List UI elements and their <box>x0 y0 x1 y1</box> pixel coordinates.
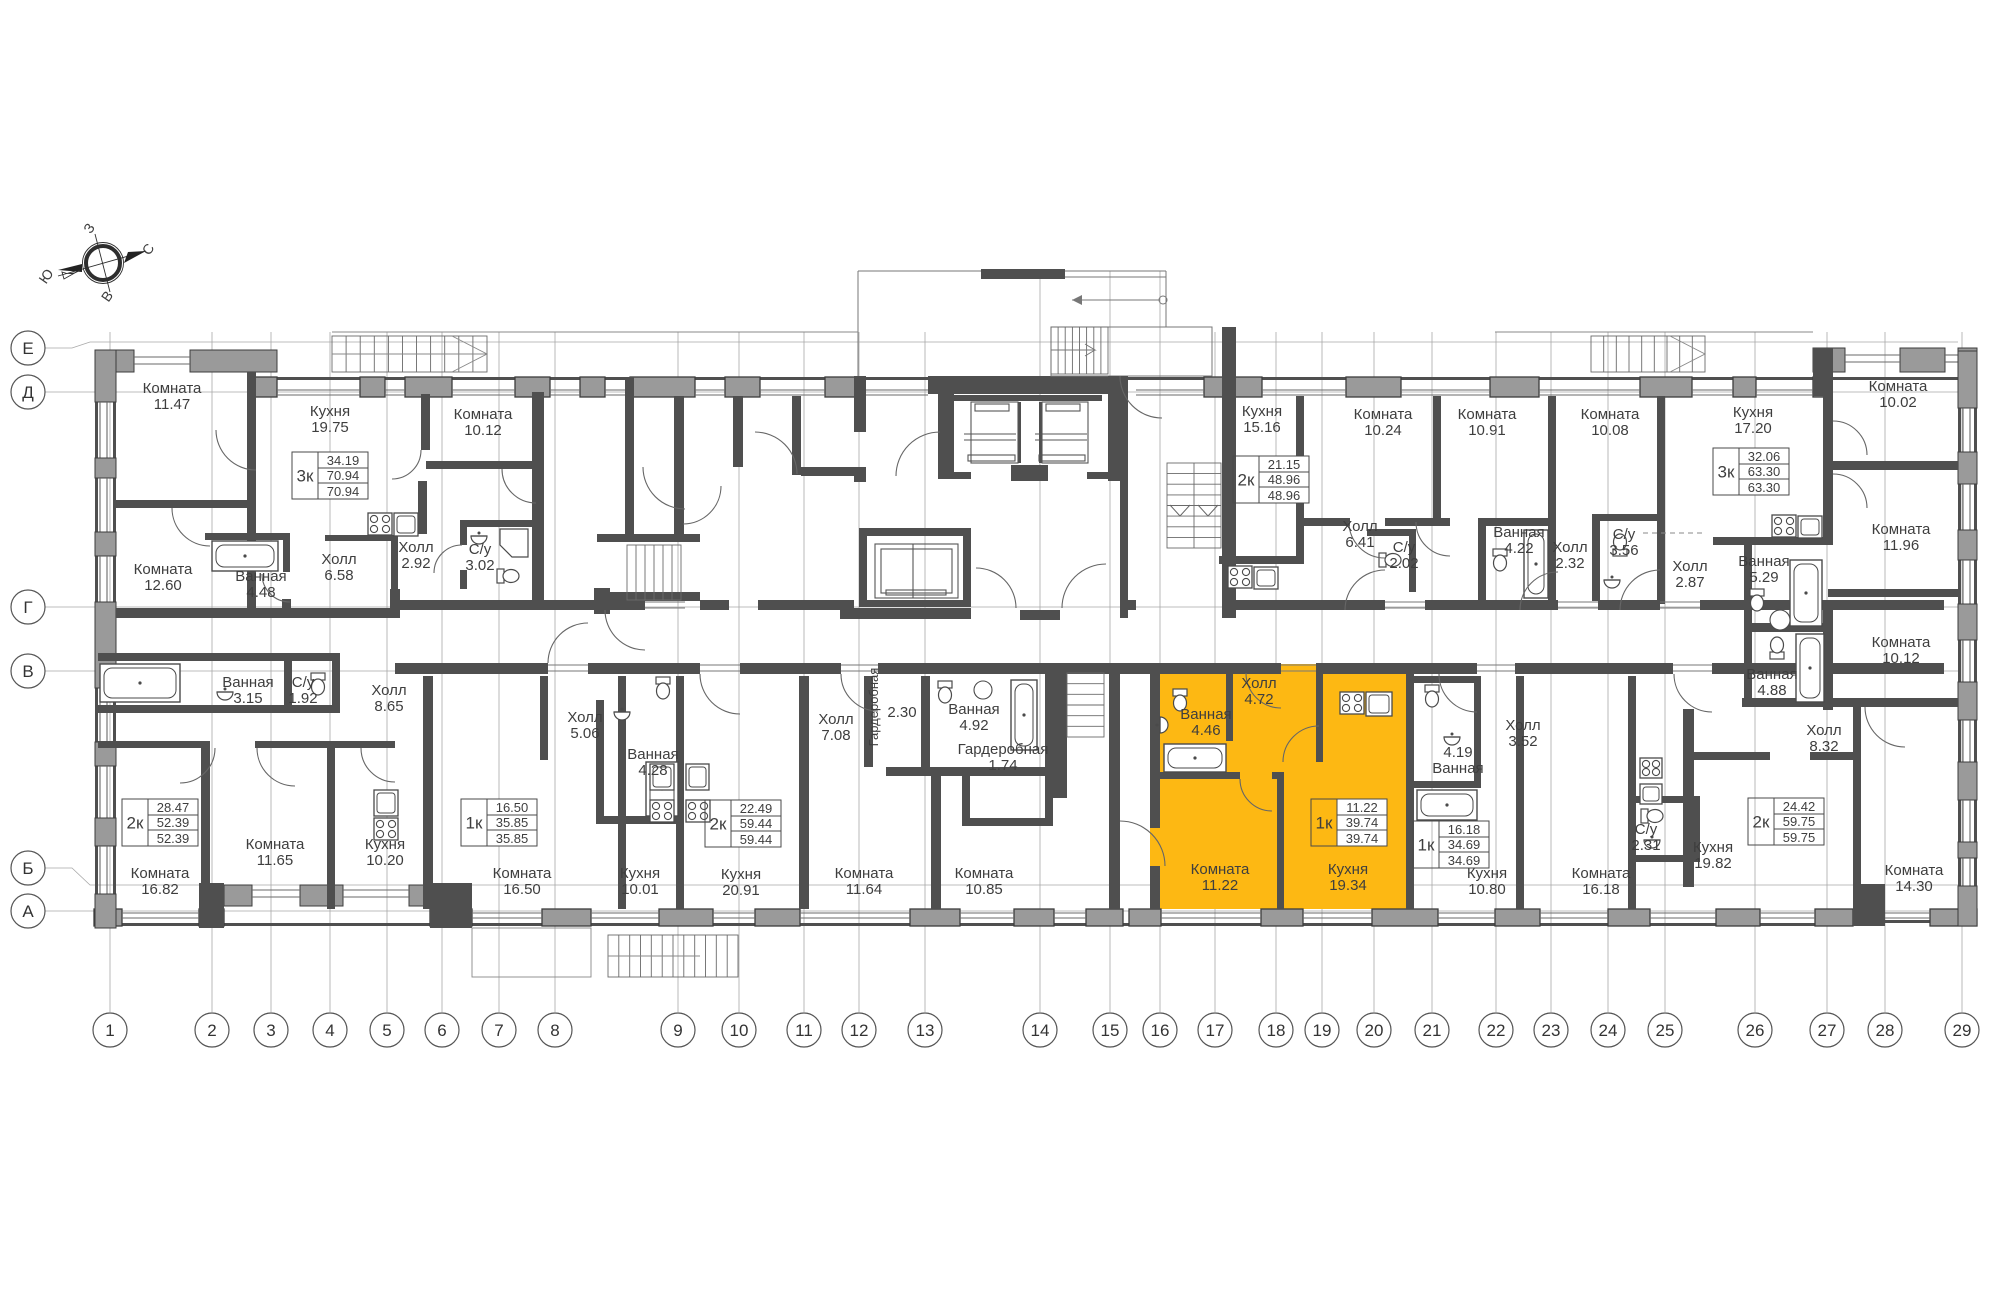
svg-text:19.82: 19.82 <box>1694 855 1732 872</box>
svg-text:2к: 2к <box>1753 813 1770 832</box>
svg-text:Ванная: Ванная <box>1432 760 1483 777</box>
svg-text:Комната: Комната <box>1458 406 1517 423</box>
svg-text:11.96: 11.96 <box>1883 537 1919 554</box>
svg-text:Комната: Комната <box>835 865 894 882</box>
svg-text:Кухня: Кухня <box>365 836 405 853</box>
svg-text:Комната: Комната <box>1581 406 1640 423</box>
svg-text:19.75: 19.75 <box>311 419 349 436</box>
svg-text:20: 20 <box>1365 1021 1384 1040</box>
svg-text:2.02: 2.02 <box>1389 555 1418 572</box>
svg-text:32.06: 32.06 <box>1748 449 1781 464</box>
svg-text:7: 7 <box>494 1021 503 1040</box>
svg-text:11.65: 11.65 <box>257 852 293 869</box>
svg-text:С/у: С/у <box>1635 821 1658 838</box>
svg-text:14: 14 <box>1031 1021 1050 1040</box>
svg-text:Комната: Комната <box>131 865 190 882</box>
svg-text:С/у: С/у <box>292 674 315 691</box>
svg-text:6.58: 6.58 <box>324 567 353 584</box>
svg-text:Холл: Холл <box>1672 558 1707 575</box>
svg-text:6: 6 <box>437 1021 446 1040</box>
svg-text:2к: 2к <box>710 815 727 834</box>
svg-text:11.64: 11.64 <box>846 881 882 898</box>
svg-text:Ванная: Ванная <box>1493 524 1544 541</box>
svg-text:9: 9 <box>673 1021 682 1040</box>
svg-text:10.91: 10.91 <box>1468 422 1506 439</box>
svg-text:Е: Е <box>22 339 33 358</box>
svg-text:26: 26 <box>1746 1021 1765 1040</box>
svg-text:Комната: Комната <box>134 561 193 578</box>
svg-text:3.52: 3.52 <box>1508 733 1537 750</box>
svg-text:Кухня: Кухня <box>1242 403 1282 420</box>
svg-text:Ванная: Ванная <box>222 674 273 691</box>
svg-text:3.02: 3.02 <box>465 557 494 574</box>
svg-text:52.39: 52.39 <box>157 815 190 830</box>
svg-text:10.20: 10.20 <box>366 852 404 869</box>
svg-text:Ванная: Ванная <box>627 746 678 763</box>
svg-text:5.29: 5.29 <box>1749 569 1778 586</box>
svg-text:48.96: 48.96 <box>1268 472 1301 487</box>
svg-text:4.22: 4.22 <box>1504 540 1533 557</box>
svg-text:10.85: 10.85 <box>965 881 1003 898</box>
svg-text:8: 8 <box>550 1021 559 1040</box>
svg-text:Ванная: Ванная <box>1738 553 1789 570</box>
svg-text:Комната: Комната <box>1354 406 1413 423</box>
svg-text:11: 11 <box>795 1021 813 1040</box>
svg-text:35.85: 35.85 <box>496 815 529 830</box>
svg-text:10: 10 <box>730 1021 749 1040</box>
svg-text:11.22: 11.22 <box>1346 800 1378 815</box>
svg-text:59.44: 59.44 <box>740 816 773 831</box>
svg-text:8.32: 8.32 <box>1809 738 1838 755</box>
svg-text:59.44: 59.44 <box>740 832 773 847</box>
svg-text:Б: Б <box>22 859 33 878</box>
svg-text:16.82: 16.82 <box>141 881 179 898</box>
svg-text:27: 27 <box>1818 1021 1837 1040</box>
svg-text:22.49: 22.49 <box>740 801 773 816</box>
svg-text:Комната: Комната <box>1572 865 1631 882</box>
svg-text:Комната: Комната <box>454 406 513 423</box>
svg-text:3к: 3к <box>1718 463 1735 482</box>
svg-text:34.69: 34.69 <box>1448 837 1481 852</box>
svg-text:1: 1 <box>105 1021 114 1040</box>
svg-text:48.96: 48.96 <box>1268 488 1301 503</box>
svg-text:Холл: Холл <box>1241 675 1276 692</box>
svg-text:13: 13 <box>916 1021 935 1040</box>
svg-text:21.15: 21.15 <box>1268 457 1301 472</box>
svg-text:14.30: 14.30 <box>1895 878 1933 895</box>
svg-text:1к: 1к <box>1316 814 1333 833</box>
svg-text:Кухня: Кухня <box>1733 404 1773 421</box>
svg-text:2к: 2к <box>127 814 144 833</box>
svg-text:Комната: Комната <box>955 865 1014 882</box>
svg-text:39.74: 39.74 <box>1346 831 1379 846</box>
svg-text:Холл: Холл <box>1505 717 1540 734</box>
svg-text:29: 29 <box>1953 1021 1972 1040</box>
svg-text:1.92: 1.92 <box>288 690 317 707</box>
svg-text:5: 5 <box>382 1021 391 1040</box>
svg-text:15.16: 15.16 <box>1243 419 1281 436</box>
svg-text:4.19: 4.19 <box>1443 744 1472 761</box>
svg-text:15: 15 <box>1101 1021 1120 1040</box>
svg-text:5.06: 5.06 <box>570 725 599 742</box>
svg-text:24.42: 24.42 <box>1783 799 1816 814</box>
svg-text:Холл: Холл <box>321 551 356 568</box>
svg-text:6.41: 6.41 <box>1345 534 1374 551</box>
svg-text:4.48: 4.48 <box>246 584 275 601</box>
svg-text:Комната: Комната <box>1885 862 1944 879</box>
svg-text:17.20: 17.20 <box>1734 420 1772 437</box>
svg-text:Комната: Комната <box>493 865 552 882</box>
svg-text:Комната: Комната <box>1191 861 1250 878</box>
svg-text:Комната: Комната <box>1869 378 1928 395</box>
svg-text:4.88: 4.88 <box>1757 682 1786 699</box>
svg-text:21: 21 <box>1423 1021 1442 1040</box>
svg-text:11.47: 11.47 <box>154 396 190 413</box>
svg-text:Холл: Холл <box>567 709 602 726</box>
svg-text:4.46: 4.46 <box>1191 722 1220 739</box>
svg-text:59.75: 59.75 <box>1783 830 1816 845</box>
svg-text:39.74: 39.74 <box>1346 815 1379 830</box>
svg-text:25: 25 <box>1656 1021 1675 1040</box>
svg-text:10.01: 10.01 <box>621 881 659 898</box>
svg-text:63.30: 63.30 <box>1748 480 1781 495</box>
svg-text:С/у: С/у <box>1613 526 1636 543</box>
svg-text:2.32: 2.32 <box>1555 555 1584 572</box>
svg-text:Комната: Комната <box>143 380 202 397</box>
svg-text:Комната: Комната <box>1872 521 1931 538</box>
svg-text:1.74: 1.74 <box>988 757 1017 774</box>
svg-text:3.15: 3.15 <box>233 690 262 707</box>
svg-text:3: 3 <box>266 1021 275 1040</box>
svg-text:В: В <box>22 662 33 681</box>
svg-text:Гардеробная: Гардеробная <box>866 668 881 747</box>
svg-text:Холл: Холл <box>1552 539 1587 556</box>
svg-text:16.18: 16.18 <box>1448 822 1481 837</box>
svg-text:24: 24 <box>1599 1021 1618 1040</box>
svg-text:Холл: Холл <box>1342 518 1377 535</box>
svg-text:Гардеробная: Гардеробная <box>958 741 1049 758</box>
svg-text:Ванная: Ванная <box>948 701 999 718</box>
svg-text:3к: 3к <box>297 467 314 486</box>
svg-text:12: 12 <box>850 1021 869 1040</box>
svg-text:Д: Д <box>22 383 34 402</box>
svg-text:Ванная: Ванная <box>1746 666 1797 683</box>
svg-text:2.31: 2.31 <box>1631 837 1660 854</box>
svg-text:2.87: 2.87 <box>1675 574 1704 591</box>
svg-text:12.60: 12.60 <box>144 577 182 594</box>
svg-text:3.56: 3.56 <box>1609 542 1638 559</box>
svg-text:34.69: 34.69 <box>1448 853 1481 868</box>
svg-text:Комната: Комната <box>1872 634 1931 651</box>
svg-text:8.65: 8.65 <box>374 698 403 715</box>
svg-text:10.08: 10.08 <box>1591 422 1629 439</box>
svg-text:20.91: 20.91 <box>722 882 760 899</box>
svg-text:16.50: 16.50 <box>496 800 529 815</box>
svg-text:Холл: Холл <box>398 539 433 556</box>
svg-text:28: 28 <box>1876 1021 1895 1040</box>
svg-text:18: 18 <box>1267 1021 1286 1040</box>
svg-text:Кухня: Кухня <box>310 403 350 420</box>
svg-text:11.22: 11.22 <box>1202 877 1238 894</box>
svg-text:2: 2 <box>207 1021 216 1040</box>
svg-text:Кухня: Кухня <box>721 866 761 883</box>
svg-text:34.19: 34.19 <box>327 453 360 468</box>
svg-text:16.18: 16.18 <box>1582 881 1620 898</box>
svg-text:70.94: 70.94 <box>327 484 360 499</box>
svg-text:10.12: 10.12 <box>1882 650 1920 667</box>
svg-text:1к: 1к <box>466 814 483 833</box>
svg-text:22: 22 <box>1487 1021 1506 1040</box>
svg-text:19: 19 <box>1313 1021 1332 1040</box>
svg-text:10.12: 10.12 <box>464 422 502 439</box>
svg-text:17: 17 <box>1206 1021 1225 1040</box>
svg-text:Ванная: Ванная <box>235 568 286 585</box>
svg-text:16: 16 <box>1151 1021 1170 1040</box>
svg-text:10.24: 10.24 <box>1364 422 1402 439</box>
svg-text:С/у: С/у <box>469 541 492 558</box>
svg-text:52.39: 52.39 <box>157 831 190 846</box>
svg-text:Холл: Холл <box>371 682 406 699</box>
svg-text:Ванная: Ванная <box>1180 706 1231 723</box>
svg-text:С/у: С/у <box>1393 539 1416 556</box>
svg-text:Г: Г <box>23 598 32 617</box>
svg-text:63.30: 63.30 <box>1748 464 1781 479</box>
svg-text:2.92: 2.92 <box>401 555 430 572</box>
svg-text:2.30: 2.30 <box>887 704 916 721</box>
svg-text:59.75: 59.75 <box>1783 814 1816 829</box>
svg-text:Холл: Холл <box>818 711 853 728</box>
svg-text:Кухня: Кухня <box>620 865 660 882</box>
svg-text:4.28: 4.28 <box>638 762 667 779</box>
svg-text:Комната: Комната <box>246 836 305 853</box>
svg-text:70.94: 70.94 <box>327 468 360 483</box>
svg-text:2к: 2к <box>1238 471 1255 490</box>
svg-text:4.92: 4.92 <box>959 717 988 734</box>
svg-text:7.08: 7.08 <box>821 727 850 744</box>
svg-text:А: А <box>22 902 34 921</box>
svg-text:16.50: 16.50 <box>503 881 541 898</box>
svg-text:Кухня: Кухня <box>1328 861 1368 878</box>
svg-text:19.34: 19.34 <box>1329 877 1367 894</box>
svg-text:10.80: 10.80 <box>1468 881 1506 898</box>
svg-text:Кухня: Кухня <box>1693 839 1733 856</box>
svg-text:35.85: 35.85 <box>496 831 529 846</box>
svg-text:4.72: 4.72 <box>1244 691 1273 708</box>
svg-text:23: 23 <box>1542 1021 1561 1040</box>
svg-text:4: 4 <box>325 1021 334 1040</box>
svg-text:1к: 1к <box>1418 836 1435 855</box>
svg-text:28.47: 28.47 <box>157 800 190 815</box>
svg-text:Холл: Холл <box>1806 722 1841 739</box>
svg-text:10.02: 10.02 <box>1879 394 1917 411</box>
